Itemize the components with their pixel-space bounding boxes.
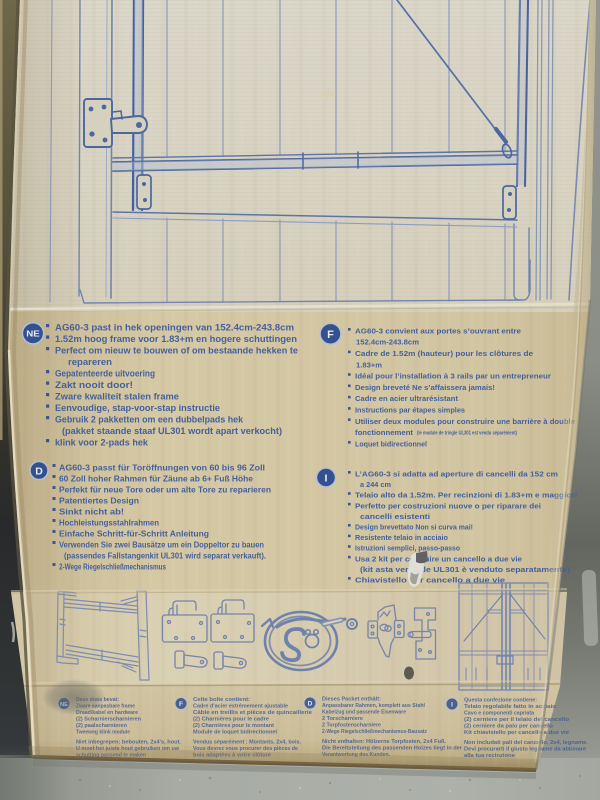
svg-text:Zakt nooit door!: Zakt nooit door!: [55, 380, 133, 390]
svg-text:repareren: repareren: [68, 357, 112, 367]
svg-text:1.52m hoog frame voor 1.83+m e: 1.52m hoog frame voor 1.83+m en hogere s…: [55, 334, 297, 344]
svg-text:Perfetto per costruzioni nuove: Perfetto per costruzioni nuove o per rip…: [355, 501, 541, 510]
svg-text:Kit chiavistello per cancello: Kit chiavistello per cancello a due vie: [464, 730, 569, 736]
svg-text:2-Wege Riegelschließmechanismu: 2-Wege Riegelschließmechanismus-Bausatz: [322, 729, 427, 735]
svg-text:Dieses Packet enthält:: Dieses Packet enthält:: [322, 697, 381, 703]
svg-text:Perfekt für neue Tore oder um: Perfekt für neue Tore oder um alte Tore …: [59, 485, 271, 494]
svg-text:Cette boîte contient:: Cette boîte contient:: [193, 697, 250, 703]
svg-text:Verwenden Sie zwei Bausätze um: Verwenden Sie zwei Bausätze um ein Doppe…: [59, 540, 264, 549]
svg-text:Loquet bidirectionnel: Loquet bidirectionnel: [355, 439, 427, 448]
svg-text:Resistente telaio in acciaio: Resistente telaio in acciaio: [355, 533, 449, 542]
svg-text:(passendes Fallstangenkit UL30: (passendes Fallstangenkit UL301 wird sep…: [64, 551, 266, 560]
svg-text:2 Torscharniere: 2 Torscharniere: [322, 716, 363, 722]
svg-text:D: D: [35, 465, 43, 477]
svg-text:Perfect om nieuw te bouwen of: Perfect om nieuw te bouwen of om bestaan…: [55, 346, 298, 356]
svg-text:F: F: [179, 701, 183, 708]
svg-text:Cadre d'acier extrêmement ajus: Cadre d'acier extrêmement ajustable: [193, 704, 288, 710]
svg-text:(2) paalscharnieren: (2) paalscharnieren: [76, 723, 128, 729]
svg-text:F: F: [327, 329, 334, 341]
svg-text:(2) Scharnierscharnieren: (2) Scharnierscharnieren: [76, 717, 142, 723]
svg-text:NE: NE: [26, 329, 40, 339]
svg-text:Cadre de 1.52m (hauteur) pour: Cadre de 1.52m (hauteur) pour les clôtur…: [355, 349, 533, 358]
svg-text:Gebruik 2 pakketten om een dub: Gebruik 2 pakketten om een dubbelpads he…: [55, 415, 243, 425]
svg-text:(2) Charnières pour le montant: (2) Charnières pour le montant: [193, 723, 274, 729]
svg-text:Cavo e componenti capriata: Cavo e componenti capriata: [464, 711, 535, 717]
svg-text:Idéal pour l’installation à 3: Idéal pour l’installation à 3 rails par …: [355, 372, 551, 381]
svg-text:Anpassbarer Rahmen, komplett a: Anpassbarer Rahmen, komplett aus Stahl: [322, 703, 425, 709]
svg-text:Kabelzug und passende Eisenwar: Kabelzug und passende Eisenware: [322, 710, 406, 716]
svg-text:Gepatenteerde uitvoering: Gepatenteerde uitvoering: [55, 369, 155, 379]
svg-text:Patentiertes Design: Patentiertes Design: [59, 496, 139, 505]
svg-text:Utiliser deux modules pour con: Utiliser deux modules pour construire un…: [355, 417, 575, 426]
svg-text:I: I: [451, 701, 453, 708]
svg-text:Non includati pali del cancell: Non includati pali del cancello, 2x4, le…: [464, 740, 588, 746]
svg-text:Zware kwaliteit stalen frame: Zware kwaliteit stalen frame: [55, 392, 179, 402]
svg-text:Nicht enthalten: Hölzerne Torp: Nicht enthalten: Hölzerne Torpfosten, 2x…: [322, 739, 446, 745]
svg-text:(kit asta verticale UL301 è ve: (kit asta verticale UL301 è venduto sepa…: [360, 565, 571, 574]
svg-text:Einfache Schritt-für-Schritt A: Einfache Schritt-für-Schritt Anleitung: [59, 529, 209, 538]
svg-text:AG60-3 past in hek openingen v: AG60-3 past in hek openingen van 152.4cm…: [55, 323, 294, 333]
svg-text:Telaio alto da 1.52m. Per reci: Telaio alto da 1.52m. Per recinzioni di …: [355, 491, 577, 500]
svg-text:L’AG60-3 si adatta ad aperture: L’AG60-3 si adatta ad aperture di cancel…: [355, 470, 559, 479]
svg-text:AG60-3 convient aux portes s’o: AG60-3 convient aux portes s’ouvrant ent…: [355, 326, 521, 335]
svg-text:Niet inbegrepen: bebouten, 2x4: Niet inbegrepen: bebouten, 2x4's, hout.: [76, 740, 181, 746]
svg-text:2-Wege Riegelschließmechanismu: 2-Wege Riegelschließmechanismus: [59, 562, 166, 571]
svg-text:cancelli esistenti: cancelli esistenti: [360, 512, 430, 521]
svg-text:60 Zoll hoher Rahmen für Zäune: 60 Zoll hoher Rahmen für Zäune ab 6+ Fuß…: [59, 474, 253, 483]
svg-text:Hochleistungsstahlrahmen: Hochleistungsstahlrahmen: [59, 518, 159, 527]
svg-text:Usa 2 kit per costruire un can: Usa 2 kit per costruire un cancello a du…: [355, 554, 522, 563]
svg-text:152.4cm-243.8cm: 152.4cm-243.8cm: [356, 338, 419, 347]
svg-text:(2) Charnières pour le cadre: (2) Charnières pour le cadre: [193, 717, 269, 723]
svg-text:Instructions par étapes simple: Instructions par étapes simples: [355, 406, 465, 415]
svg-text:(2) cerniere per il telaio del: (2) cerniere per il telaio del cancello: [464, 717, 570, 723]
svg-text:I: I: [325, 473, 328, 485]
svg-text:(le module de tringle UL301 es: (le module de tringle UL301 est vendu sé…: [417, 431, 517, 437]
svg-text:Sinkt nicht ab!: Sinkt nicht ab!: [59, 507, 124, 516]
svg-text:D: D: [308, 700, 313, 707]
svg-text:(pakket staande staaf UL301 wo: (pakket staande staaf UL301 wordt apart …: [62, 426, 282, 436]
svg-text:2 Torpfostenscharniere: 2 Torpfostenscharniere: [322, 723, 381, 729]
svg-text:klink voor 2-pads hek: klink voor 2-pads hek: [55, 438, 148, 448]
svg-text:Questa confezione contiene:: Questa confezione contiene:: [464, 698, 537, 704]
svg-text:Eenvoudige, stap-voor-stap ins: Eenvoudige, stap-voor-stap instructie: [55, 403, 220, 413]
svg-text:Cadre en acier ultrarésistant: Cadre en acier ultrarésistant: [355, 394, 459, 403]
svg-text:fonctionnement: fonctionnement: [355, 428, 414, 437]
svg-text:a 244 cm: a 244 cm: [360, 480, 392, 489]
svg-text:Design brevettato Non si curva: Design brevettato Non si curva mai!: [355, 523, 473, 532]
svg-text:Module de loquet bidirectionne: Module de loquet bidirectionnel: [193, 730, 277, 736]
svg-text:Vendus séparément : Montants,: Vendus séparément : Montants, 2x4, bois.: [193, 740, 301, 746]
svg-text:Istruzioni semplici, passo-pas: Istruzioni semplici, passo-passo: [355, 544, 461, 553]
svg-text:AG60-3 passt für Toröffnungen: AG60-3 passt für Toröffnungen von 60 bis…: [59, 463, 265, 472]
svg-text:Tweeweg klink module: Tweeweg klink module: [76, 730, 130, 736]
svg-text:1.83+m: 1.83+m: [356, 360, 382, 369]
svg-text:Design breveté Ne s’affaissera: Design breveté Ne s’affaissera jamais!: [355, 383, 495, 392]
svg-text:Die Bereitstellung des passend: Die Bereitstellung des passenden Holzes …: [322, 746, 463, 752]
svg-text:Devi procurarti il giusto legn: Devi procurarti il giusto legname da abb…: [464, 747, 586, 753]
svg-text:Câble en treillis et pièces de: Câble en treillis et pièces de quincaill…: [193, 710, 312, 716]
